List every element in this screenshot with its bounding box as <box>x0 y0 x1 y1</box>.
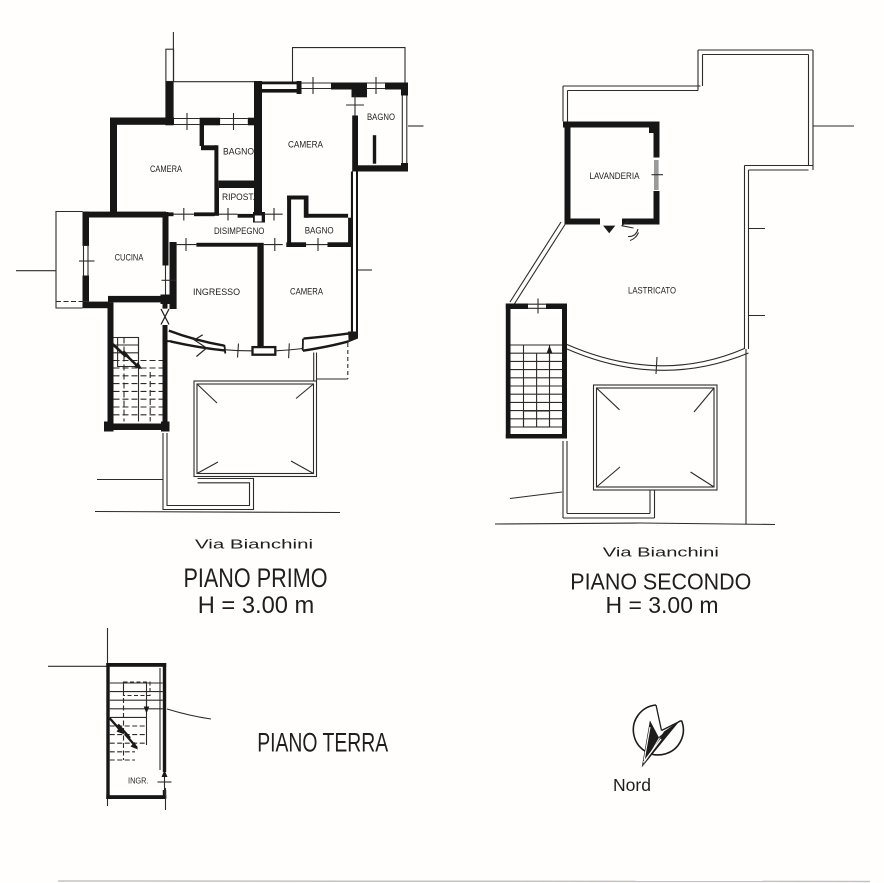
svg-text:BAGNO: BAGNO <box>305 226 334 236</box>
svg-text:PIANO SECONDO: PIANO SECONDO <box>570 569 751 595</box>
svg-text:RIPOST.: RIPOST. <box>222 192 255 202</box>
svg-text:Nord: Nord <box>613 775 651 795</box>
svg-text:PIANO TERRA: PIANO TERRA <box>257 727 388 757</box>
svg-text:BAGNO: BAGNO <box>367 112 395 122</box>
svg-text:DISIMPEGNO: DISIMPEGNO <box>214 226 265 236</box>
svg-text:H = 3.00 m: H = 3.00 m <box>198 592 315 619</box>
svg-text:CUCINA: CUCINA <box>115 253 144 263</box>
svg-text:Via Bianchini: Via Bianchini <box>195 537 313 552</box>
svg-text:INGRESSO: INGRESSO <box>193 287 240 297</box>
svg-text:CAMERA: CAMERA <box>150 164 182 174</box>
svg-text:H = 3.00 m: H = 3.00 m <box>606 592 719 618</box>
svg-text:PIANO PRIMO: PIANO PRIMO <box>184 563 328 593</box>
svg-text:LASTRICATO: LASTRICATO <box>628 286 676 296</box>
svg-text:BAGNO: BAGNO <box>223 147 254 157</box>
svg-text:CAMERA: CAMERA <box>288 140 323 150</box>
svg-text:Via Bianchini: Via Bianchini <box>603 545 719 560</box>
svg-text:INGR.: INGR. <box>128 777 149 786</box>
svg-text:CAMERA: CAMERA <box>290 287 323 297</box>
svg-text:LAVANDERIA: LAVANDERIA <box>590 171 640 181</box>
